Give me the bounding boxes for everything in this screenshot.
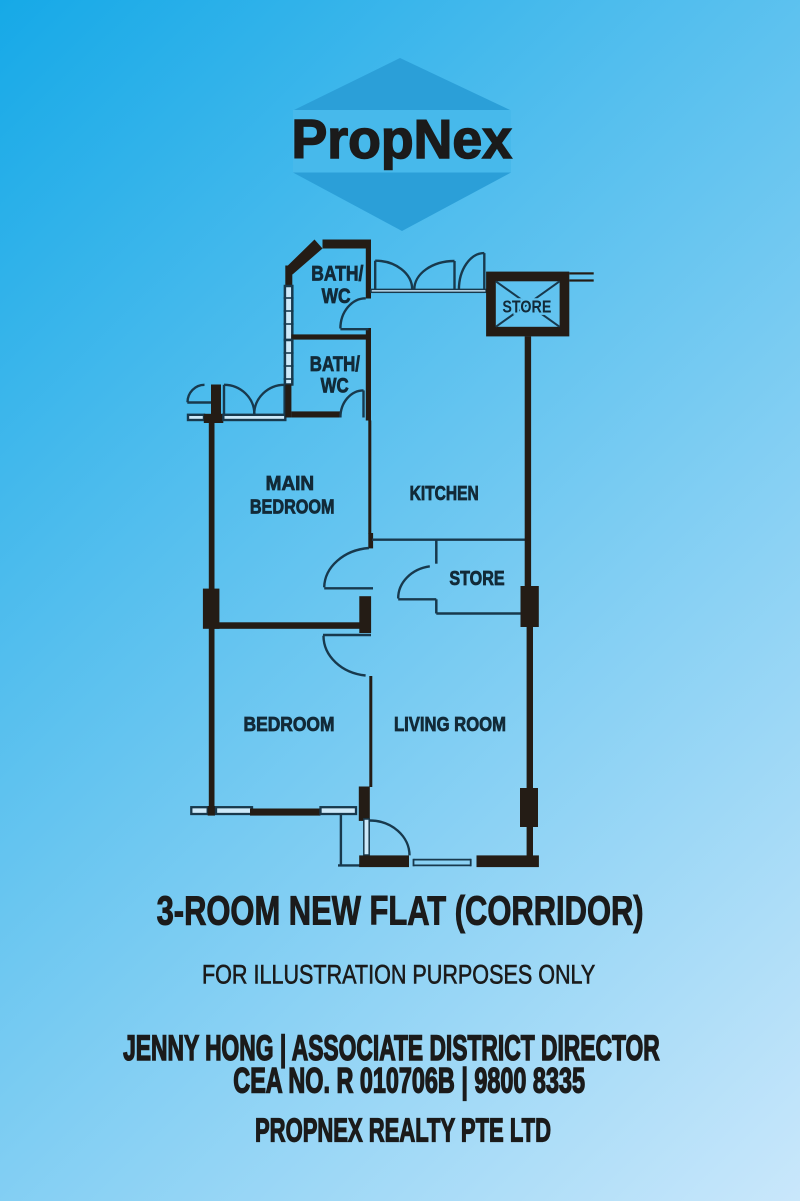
svg-text:BATH/: BATH/ [310, 353, 360, 376]
svg-text:BEDROOM: BEDROOM [250, 496, 335, 518]
svg-text:KITCHEN: KITCHEN [410, 483, 479, 505]
svg-text:MAIN: MAIN [266, 473, 315, 495]
svg-text:PROPNEX REALTY PTE LTD: PROPNEX REALTY PTE LTD [255, 1113, 551, 1150]
svg-text:BATH/: BATH/ [311, 263, 363, 286]
svg-text:PropNex: PropNex [292, 109, 513, 170]
svg-text:FOR ILLUSTRATION PURPOSES ONLY: FOR ILLUSTRATION PURPOSES ONLY [202, 960, 596, 990]
svg-text:WC: WC [322, 285, 351, 308]
svg-text:3-ROOM NEW FLAT (CORRIDOR): 3-ROOM NEW FLAT (CORRIDOR) [157, 888, 644, 934]
svg-text:STORE: STORE [449, 567, 504, 590]
svg-text:BEDROOM: BEDROOM [244, 714, 335, 736]
svg-text:CEA NO. R 010706B | 9800 8335: CEA NO. R 010706B | 9800 8335 [233, 1061, 585, 1101]
svg-text:LIVING ROOM: LIVING ROOM [394, 714, 506, 736]
svg-text:STORE: STORE [502, 296, 551, 316]
svg-text:WC: WC [321, 375, 349, 398]
